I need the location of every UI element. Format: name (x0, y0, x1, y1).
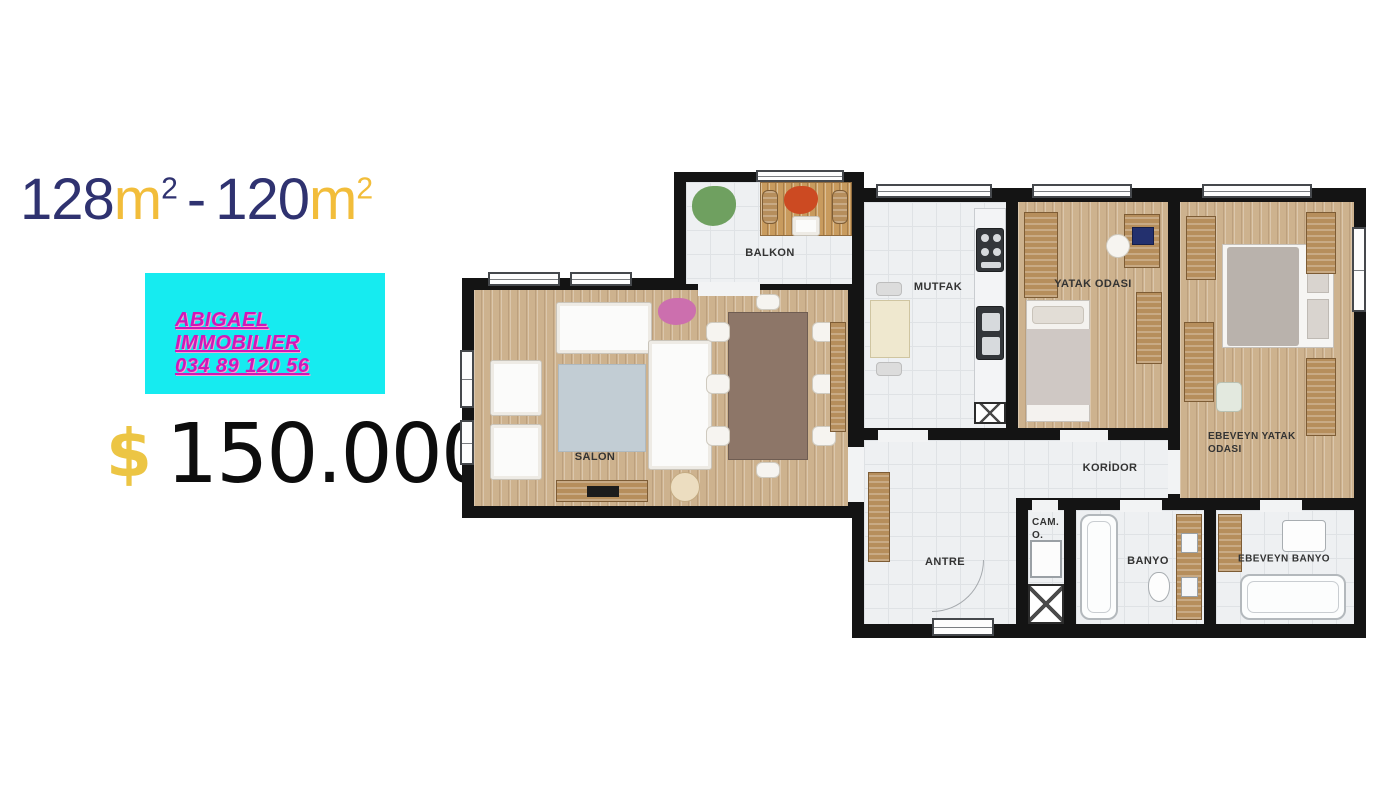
dining-chair (756, 294, 780, 310)
label-balkon: BALKON (745, 247, 794, 259)
area-value-1: 128 (20, 167, 114, 232)
agency-banner: ABIGAEL IMMOBILIER 034 89 120 56 (145, 273, 385, 394)
dining-chair (706, 426, 730, 446)
sofa (556, 302, 652, 354)
room-mutfak (864, 202, 1006, 428)
single-bed (1026, 300, 1090, 422)
dresser (1186, 216, 1216, 280)
label-antre: ANTRE (925, 556, 965, 568)
bed-blanket (1027, 329, 1090, 405)
stove (976, 228, 1004, 272)
bath-sink (1282, 520, 1326, 552)
laundry-machine (1030, 540, 1062, 578)
dresser (1184, 322, 1214, 402)
green-plant (692, 186, 736, 226)
area-sup-1: 2 (161, 173, 177, 206)
kitchen-sink (976, 306, 1004, 360)
balcony-chair (832, 190, 848, 224)
dining-chair (756, 462, 780, 478)
dining-table (728, 312, 808, 460)
laptop (1132, 227, 1154, 245)
agency-phone: 034 89 120 56 (175, 355, 385, 378)
bath-vanity (1176, 514, 1202, 620)
door-opening (1032, 500, 1058, 512)
bed-pillow (1032, 306, 1084, 324)
window (876, 184, 992, 198)
floorplan: BALKON SALON MUTFAK YATAK ODASI EBEVEYN … (460, 172, 1365, 637)
kitchen-chair (876, 282, 902, 296)
label-ebeveyn-yatak-line1: EBEVEYN YATAK (1208, 431, 1296, 442)
hall-cabinet (868, 472, 890, 562)
wardrobe (1024, 212, 1058, 298)
rug (558, 364, 646, 452)
area-sup-2: 2 (356, 173, 372, 206)
area-range-text: 128m2-120m2 (20, 168, 372, 232)
flower-plant (658, 298, 696, 325)
door-opening (1260, 500, 1302, 512)
label-ebeveyn-yatak-line2: ODASI (1208, 444, 1242, 455)
price-amount: 150.000 (166, 412, 491, 498)
desk (1124, 214, 1160, 268)
bed-blanket (1227, 247, 1299, 346)
window (488, 272, 560, 286)
label-ebeveyn-banyo: EBEVEYN BANYO (1238, 554, 1330, 565)
washing-machine (974, 402, 1006, 424)
window (570, 272, 632, 286)
window (756, 170, 844, 182)
window (460, 350, 474, 408)
door-opening (878, 430, 928, 442)
window (1202, 184, 1312, 198)
kitchen-table (870, 300, 910, 358)
price: $ 150.000 (106, 412, 491, 498)
bed-pillow (1307, 299, 1329, 339)
currency-icon: $ (106, 412, 152, 496)
dining-chair (706, 374, 730, 394)
room-banyo (1076, 510, 1204, 624)
wardrobe (1306, 358, 1336, 436)
door-opening (848, 447, 864, 502)
sideboard (830, 322, 846, 432)
side-table (670, 472, 700, 502)
bathtub (1080, 514, 1118, 620)
window (1032, 184, 1132, 198)
bathtub (1240, 574, 1346, 620)
bedroom-chair (1216, 382, 1242, 412)
label-cam-line1: CAM. (1032, 517, 1059, 528)
room-salon (474, 290, 848, 506)
window (460, 420, 474, 465)
door-opening (1168, 450, 1180, 494)
room-ebeveyn-banyo (1216, 510, 1354, 624)
window (1352, 227, 1366, 312)
label-banyo: BANYO (1127, 555, 1169, 567)
agency-name-line2: IMMOBILIER (175, 332, 385, 355)
balcony-table (792, 216, 820, 236)
sofa (648, 340, 712, 470)
toilet (1148, 572, 1170, 602)
door-opening (1120, 500, 1162, 512)
room-balkon (686, 182, 852, 284)
label-cam-odasi: CAM. O. (1032, 516, 1066, 542)
label-ebeveyn-yatak-odasi: EBEVEYN YATAK ODASI (1208, 430, 1328, 456)
agency-name-line1: ABIGAEL (175, 309, 385, 332)
tv-console (556, 480, 648, 502)
wardrobe (1306, 212, 1336, 274)
area-unit-1: m (114, 167, 161, 232)
shaft (1028, 584, 1064, 624)
dining-chair (706, 322, 730, 342)
bath-sink (1181, 577, 1198, 597)
label-mutfak: MUTFAK (914, 281, 962, 293)
area-value-2: 120 (215, 167, 309, 232)
tv (587, 486, 619, 497)
bath-sink (1181, 533, 1198, 553)
kitchen-chair (876, 362, 902, 376)
desk-chair (1106, 234, 1130, 258)
door-opening (1060, 430, 1108, 442)
door-opening (698, 282, 760, 296)
label-salon: SALON (575, 451, 616, 463)
room-yatak-odasi (1018, 202, 1168, 428)
armchair (490, 424, 542, 480)
entrance-door (932, 618, 994, 636)
armchair (490, 360, 542, 416)
label-koridor: KORİDOR (1083, 462, 1138, 474)
label-cam-line2: O. (1032, 530, 1043, 541)
area-separator: - (187, 167, 205, 232)
label-yatak-odasi: YATAK ODASI (1054, 278, 1132, 290)
balcony-chair (762, 190, 778, 224)
tall-cabinet (1136, 292, 1162, 364)
area-unit-2: m (309, 167, 356, 232)
room-antre (864, 440, 1016, 624)
